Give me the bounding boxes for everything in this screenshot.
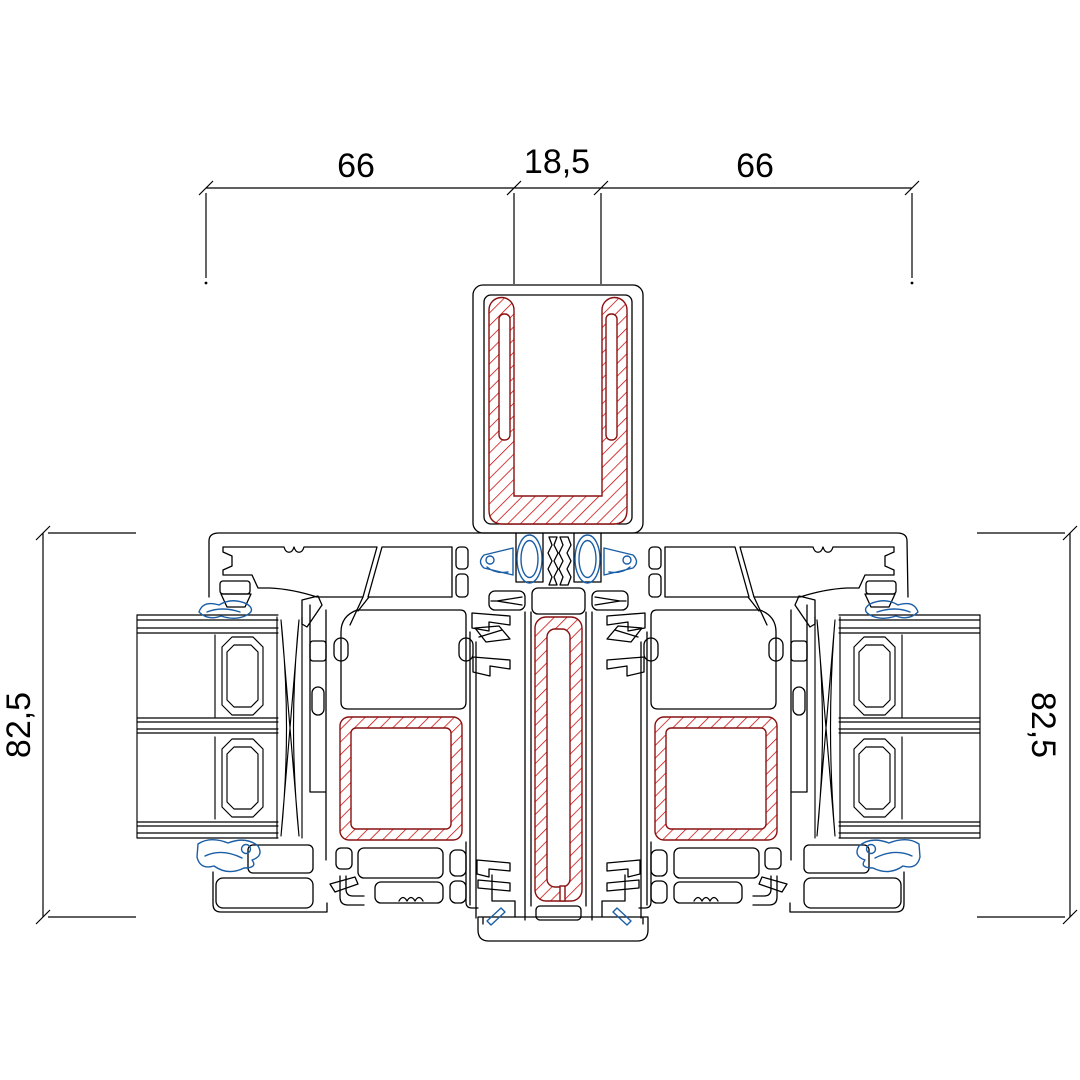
glazing-bead-hook (795, 596, 815, 627)
spacer-bar-inner (859, 645, 890, 707)
sash-bottom-chamber (248, 845, 313, 873)
sash-bottom-chamber (375, 882, 443, 903)
interlock-chamber (651, 850, 667, 876)
glass-pane (137, 718, 278, 733)
center-seal-strip (559, 537, 571, 585)
right-foot-chamber (866, 581, 896, 594)
nib-arrow (491, 597, 522, 605)
bead-channel (310, 605, 326, 860)
gasket-hole (486, 556, 494, 564)
sash-main-chamber (341, 610, 466, 709)
interlock-claw (478, 880, 510, 891)
drawing-canvas: 66 18,5 66 82,5 82,5 (0, 0, 1080, 1080)
gasket-hole (242, 845, 251, 854)
glass-pane (839, 822, 980, 838)
interlock-claw (477, 860, 510, 877)
spacer-bar-inner (227, 747, 258, 809)
glazing-rebate-walls (815, 617, 840, 838)
center-bubble-gasket-inner (521, 541, 538, 578)
bottom-step (466, 842, 515, 917)
spacer-bar-inner (227, 645, 258, 707)
left-glazing-unit (137, 615, 302, 838)
bead-bridge (310, 641, 326, 661)
steel-slot (606, 314, 617, 440)
dim-label-top-left: 66 (337, 147, 375, 185)
sash-bottom-chamber (765, 848, 781, 869)
sash-bottom-chamber (358, 848, 443, 878)
glass-pane (137, 822, 278, 838)
bottom-clip (759, 877, 787, 892)
inner-gasket (857, 840, 920, 872)
sash-bottom-chamber (336, 848, 352, 869)
dim-label-top-center: 18,5 (524, 143, 590, 181)
frame-chamber (740, 547, 894, 597)
sash-main-chamber (651, 610, 776, 709)
frame-chamber (223, 547, 377, 597)
bead-wedge-gasket (817, 620, 835, 836)
arrow-gasket (604, 548, 637, 575)
center-bubble-gasket-inner (579, 541, 596, 578)
sash-bottom-chamber (674, 848, 759, 878)
interlock-chamber (651, 881, 667, 903)
glazing-bead-hook (302, 596, 322, 627)
interlock-walls (470, 612, 531, 920)
arrow-gasket (481, 548, 514, 575)
steel-slot (499, 314, 510, 440)
interlock-claw (607, 657, 644, 676)
drainage-wave (694, 898, 718, 902)
interlock-walls (586, 612, 647, 920)
gasket-hole (623, 556, 631, 564)
sash-front-wall (350, 597, 369, 625)
extension-line (206, 193, 912, 284)
inner-gasket (197, 840, 260, 872)
mullion-bottom-chamber (536, 906, 581, 920)
sash-bottom-chamber (216, 878, 313, 908)
bottom-clip (330, 877, 358, 892)
outer-gasket (866, 601, 919, 619)
steel-reinforcements (340, 298, 777, 902)
sash-bottom-chamber (804, 845, 869, 873)
frame-chamber (368, 547, 452, 597)
frame-chamber (456, 547, 468, 569)
bead-channel (791, 605, 807, 860)
interlock-strut (607, 626, 642, 642)
dim-label-right-side: 82,5 (1024, 692, 1062, 758)
frame-chamber (649, 574, 661, 597)
left-dimension (36, 526, 136, 924)
nib-arrow (595, 597, 626, 605)
interlock-strut (475, 626, 510, 642)
interlock-chamber (450, 881, 466, 903)
center-seal-strip (548, 537, 558, 585)
frame-chamber (665, 547, 749, 597)
dim-label-left-side: 82,5 (0, 692, 38, 758)
interlock-claw (607, 860, 640, 877)
sash-bottom-chamber (674, 882, 742, 903)
gasket-hole (867, 845, 876, 854)
glass-pane (839, 718, 980, 733)
interlock-claw (473, 657, 510, 676)
mullion-top-chamber (532, 588, 585, 614)
left-foot-chamber (220, 581, 250, 594)
spacer-bar (222, 637, 263, 715)
bead-wedge-gasket (281, 620, 299, 836)
frame-chamber (649, 547, 661, 569)
spacer-bar (854, 739, 895, 817)
steel-hollow (351, 728, 451, 829)
frame-chamber (456, 574, 468, 597)
bead-slot (312, 687, 324, 715)
drainage-wave (399, 898, 423, 902)
right-glazing-unit (815, 615, 980, 838)
bottom-step (602, 842, 651, 917)
steel-hollow (547, 629, 570, 887)
spacer-bar (222, 739, 263, 817)
top-dimension (199, 181, 919, 284)
spacer-bar (854, 637, 895, 715)
steel-slit (560, 886, 565, 901)
spacer-bar-inner (859, 747, 890, 809)
steel-hollow (666, 728, 766, 829)
frame-outer-profile (209, 533, 908, 614)
interlock-chamber (450, 850, 466, 876)
interlock-claw (607, 880, 639, 891)
sash-front-wall (748, 597, 767, 625)
window-mullion-cross-section: 66 18,5 66 82,5 82,5 (0, 0, 1080, 1080)
bead-slot (793, 687, 805, 715)
extension-line (48, 533, 136, 917)
sash-bottom-chamber (804, 878, 901, 908)
dim-label-top-right: 66 (736, 147, 774, 185)
bead-bridge (791, 641, 807, 661)
